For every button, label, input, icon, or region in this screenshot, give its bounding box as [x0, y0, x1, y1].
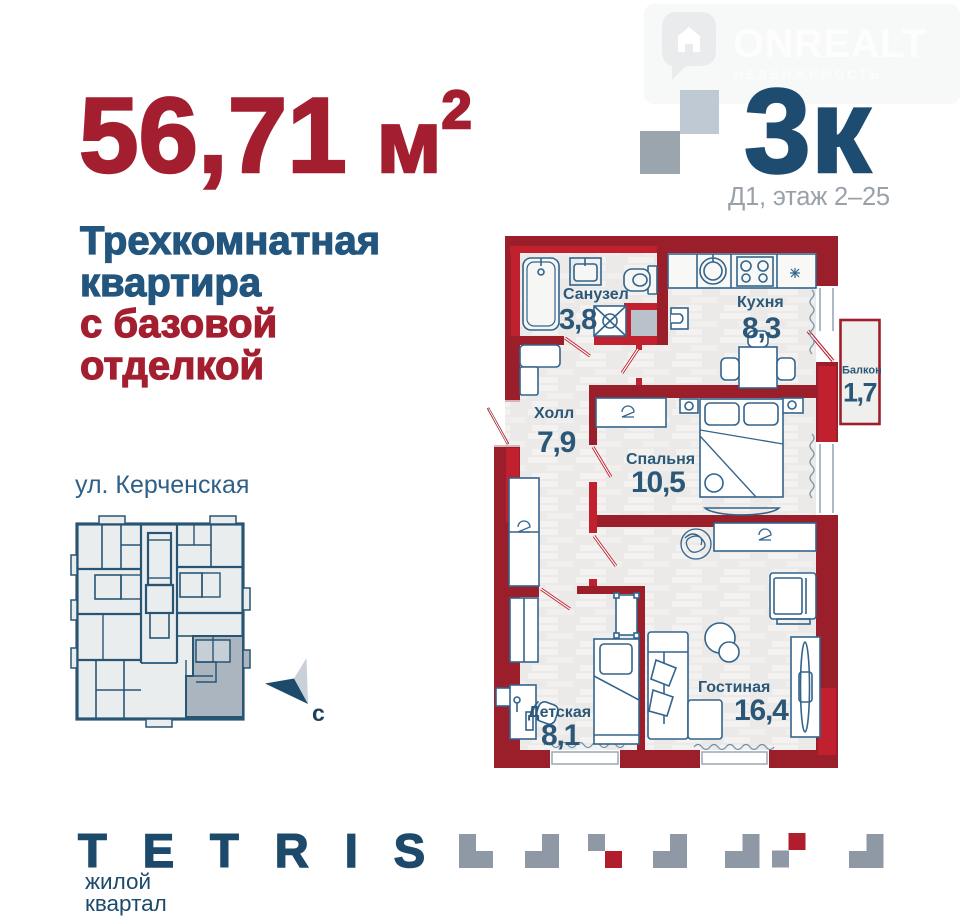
svg-text:3,8: 3,8	[559, 304, 597, 336]
svg-text:Санузел: Санузел	[563, 286, 629, 303]
svg-text:16,4: 16,4	[734, 694, 789, 727]
svg-text:Холл: Холл	[534, 405, 574, 422]
svg-text:Балкон: Балкон	[842, 365, 882, 377]
svg-text:Кухня: Кухня	[737, 294, 784, 311]
svg-text:8,1: 8,1	[541, 719, 580, 752]
svg-text:7,9: 7,9	[537, 426, 576, 459]
svg-text:10,5: 10,5	[631, 466, 685, 499]
svg-text:ONREALT: ONREALT	[733, 22, 927, 66]
svg-text:1,7: 1,7	[843, 378, 877, 408]
svg-text:8,3: 8,3	[742, 312, 781, 345]
svg-text:с: с	[312, 700, 325, 726]
